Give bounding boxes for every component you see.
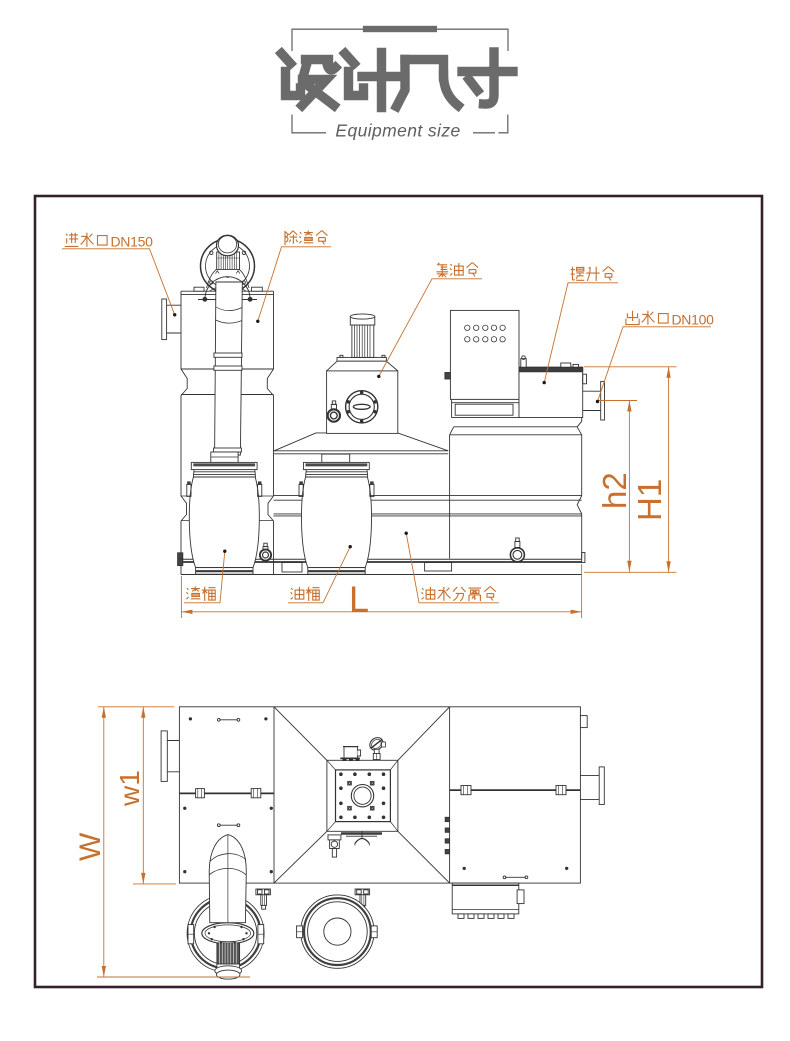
- svg-text:W: W: [74, 832, 107, 861]
- svg-text:DN150: DN150: [111, 234, 154, 250]
- svg-text:Equipment size: Equipment size: [335, 121, 460, 141]
- svg-text:H1: H1: [631, 479, 668, 521]
- svg-text:DN100: DN100: [672, 312, 715, 328]
- svg-text:w1: w1: [114, 770, 145, 807]
- svg-text:L: L: [349, 579, 369, 620]
- svg-text:h2: h2: [596, 472, 633, 509]
